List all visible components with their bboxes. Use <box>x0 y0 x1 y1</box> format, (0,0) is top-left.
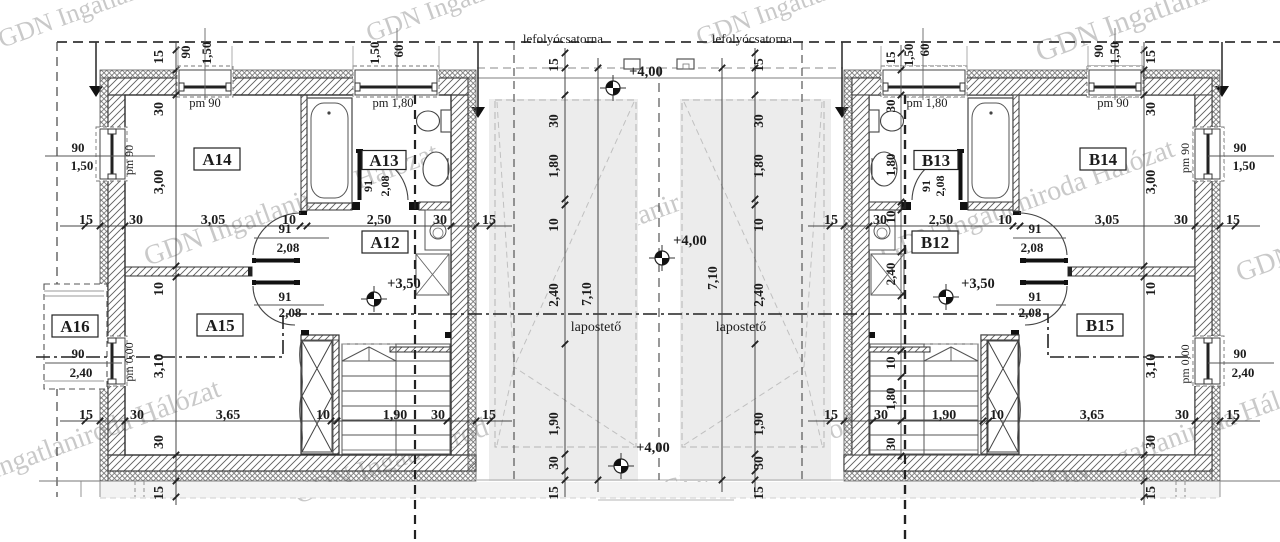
svg-text:60: 60 <box>917 44 932 57</box>
svg-text:15: 15 <box>1226 213 1240 228</box>
svg-text:30: 30 <box>883 438 898 451</box>
svg-text:2,08: 2,08 <box>277 240 300 255</box>
svg-text:10: 10 <box>998 213 1012 228</box>
svg-text:15: 15 <box>546 486 561 500</box>
svg-text:lefolyócsatorna: lefolyócsatorna <box>712 31 792 46</box>
svg-text:A16: A16 <box>60 317 89 336</box>
svg-text:2,08: 2,08 <box>1019 305 1042 320</box>
svg-text:+4,00: +4,00 <box>636 440 670 456</box>
svg-text:1,90: 1,90 <box>546 412 561 436</box>
svg-text:1,80: 1,80 <box>546 154 561 178</box>
svg-text:1,90: 1,90 <box>751 412 766 436</box>
svg-text:A14: A14 <box>202 150 232 169</box>
svg-text:30: 30 <box>546 114 561 128</box>
svg-text:15: 15 <box>751 486 766 500</box>
svg-text:2,40: 2,40 <box>883 263 898 286</box>
svg-text:1,80: 1,80 <box>883 388 898 411</box>
svg-text:15: 15 <box>1144 486 1159 500</box>
svg-text:10: 10 <box>152 282 167 296</box>
svg-text:3,05: 3,05 <box>201 213 226 228</box>
svg-text:1,90: 1,90 <box>383 408 408 423</box>
svg-text:lapostető: lapostető <box>571 320 622 335</box>
svg-text:3,10: 3,10 <box>1144 354 1159 379</box>
svg-text:10: 10 <box>883 211 898 224</box>
svg-text:7,10: 7,10 <box>579 282 594 306</box>
svg-text:10: 10 <box>883 357 898 370</box>
svg-text:7,10: 7,10 <box>705 266 720 290</box>
svg-text:pm 90: pm 90 <box>1097 96 1129 110</box>
svg-text:10: 10 <box>546 218 561 232</box>
svg-text:3,65: 3,65 <box>216 408 241 423</box>
svg-text:30: 30 <box>1144 435 1159 449</box>
svg-text:3,00: 3,00 <box>152 170 167 195</box>
svg-text:A13: A13 <box>369 151 398 170</box>
svg-text:1,50: 1,50 <box>1233 158 1256 173</box>
svg-text:90: 90 <box>1091 45 1106 58</box>
svg-text:10: 10 <box>990 408 1004 423</box>
svg-text:15: 15 <box>1226 408 1240 423</box>
svg-text:+3,50: +3,50 <box>387 276 421 292</box>
svg-text:B13: B13 <box>922 151 950 170</box>
svg-text:1,90: 1,90 <box>932 408 957 423</box>
svg-text:15: 15 <box>546 58 561 72</box>
svg-text:1,80: 1,80 <box>883 154 898 177</box>
svg-text:15: 15 <box>883 51 898 65</box>
svg-text:15: 15 <box>79 213 93 228</box>
svg-text:10: 10 <box>751 218 766 232</box>
svg-text:15: 15 <box>152 50 167 64</box>
svg-text:pm 90: pm 90 <box>1178 143 1192 173</box>
svg-text:2,08: 2,08 <box>378 176 392 197</box>
svg-text:+4,00: +4,00 <box>673 233 707 249</box>
svg-text:15: 15 <box>482 213 496 228</box>
svg-text:15: 15 <box>824 213 838 228</box>
svg-text:B15: B15 <box>1086 316 1114 335</box>
svg-text:30: 30 <box>751 456 766 470</box>
svg-text:1,50: 1,50 <box>367 42 382 65</box>
svg-text:30: 30 <box>130 408 144 423</box>
svg-text:30: 30 <box>152 102 167 116</box>
svg-text:2,08: 2,08 <box>279 305 302 320</box>
svg-text:90: 90 <box>72 346 85 361</box>
svg-text:15: 15 <box>152 486 167 500</box>
svg-text:10: 10 <box>1144 282 1159 296</box>
svg-text:pm 90: pm 90 <box>122 145 136 175</box>
svg-text:30: 30 <box>1174 213 1188 228</box>
svg-text:lapostető: lapostető <box>716 320 767 335</box>
svg-text:2,40: 2,40 <box>751 283 766 307</box>
svg-text:30: 30 <box>1175 408 1189 423</box>
svg-text:2,08: 2,08 <box>933 176 947 197</box>
svg-text:3,05: 3,05 <box>1095 213 1120 228</box>
svg-text:2,40: 2,40 <box>70 365 93 380</box>
svg-text:1,50: 1,50 <box>1107 42 1122 65</box>
svg-text:2,40: 2,40 <box>546 283 561 307</box>
svg-text:2,40: 2,40 <box>1232 365 1255 380</box>
svg-text:+3,50: +3,50 <box>961 276 995 292</box>
svg-text:3,65: 3,65 <box>1080 408 1105 423</box>
svg-text:B14: B14 <box>1089 150 1118 169</box>
svg-text:1,50: 1,50 <box>71 158 94 173</box>
svg-text:91: 91 <box>279 221 292 236</box>
svg-text:pm 0,00: pm 0,00 <box>122 342 136 381</box>
svg-text:A12: A12 <box>370 233 399 252</box>
svg-text:A15: A15 <box>205 316 234 335</box>
svg-text:3,10: 3,10 <box>152 354 167 379</box>
svg-text:pm 1,80: pm 1,80 <box>373 96 414 110</box>
svg-text:91: 91 <box>919 180 933 192</box>
svg-text:91: 91 <box>1029 221 1042 236</box>
svg-text:30: 30 <box>431 408 445 423</box>
svg-text:91: 91 <box>361 180 375 192</box>
svg-text:2,08: 2,08 <box>1021 240 1044 255</box>
svg-text:30: 30 <box>1144 102 1159 116</box>
svg-text:30: 30 <box>751 114 766 128</box>
svg-text:90: 90 <box>72 140 85 155</box>
svg-text:1,50: 1,50 <box>199 42 214 65</box>
svg-text:2,50: 2,50 <box>367 213 392 228</box>
svg-text:+4,00: +4,00 <box>629 64 663 80</box>
svg-text:1,50: 1,50 <box>901 44 916 67</box>
svg-text:1,80: 1,80 <box>751 154 766 178</box>
svg-text:pm 90: pm 90 <box>189 96 221 110</box>
svg-text:15: 15 <box>751 58 766 72</box>
svg-text:30: 30 <box>883 100 898 113</box>
svg-text:91: 91 <box>1029 289 1042 304</box>
svg-text:30: 30 <box>546 456 561 470</box>
svg-text:10: 10 <box>316 408 330 423</box>
svg-text:15: 15 <box>1144 50 1159 64</box>
svg-text:15: 15 <box>79 408 93 423</box>
svg-text:90: 90 <box>178 46 193 59</box>
svg-text:pm 1,80: pm 1,80 <box>907 96 948 110</box>
svg-text:90: 90 <box>1234 346 1247 361</box>
svg-text:30: 30 <box>152 435 167 449</box>
svg-text:15: 15 <box>824 408 838 423</box>
svg-text:lefolyócsatorna: lefolyócsatorna <box>523 31 603 46</box>
svg-text:90: 90 <box>1234 140 1247 155</box>
svg-text:B12: B12 <box>921 233 949 252</box>
svg-text:91: 91 <box>279 289 292 304</box>
svg-text:pm 0,00: pm 0,00 <box>1178 344 1192 383</box>
svg-text:60: 60 <box>391 45 406 58</box>
svg-text:30: 30 <box>433 213 447 228</box>
svg-text:15: 15 <box>482 408 496 423</box>
svg-text:3,00: 3,00 <box>1144 170 1159 195</box>
svg-text:30: 30 <box>129 213 143 228</box>
svg-text:2,50: 2,50 <box>929 213 954 228</box>
